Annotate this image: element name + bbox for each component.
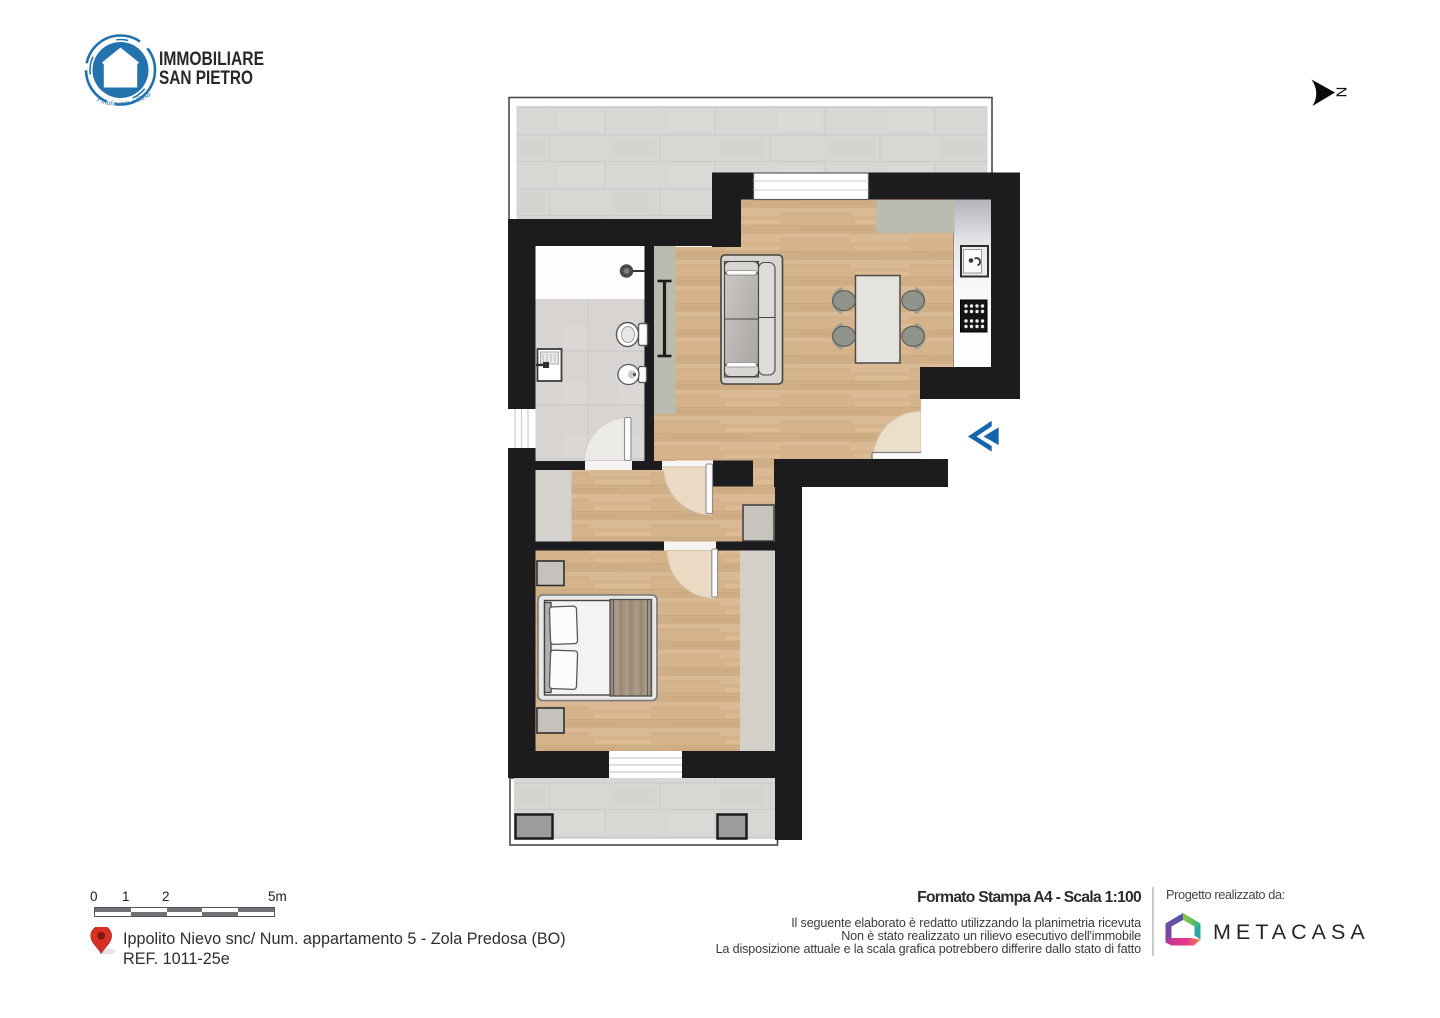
svg-text:N: N [1333,87,1350,98]
svg-text:IMMOBILIARE: IMMOBILIARE [159,49,264,70]
svg-text:SAN PIETRO: SAN PIETRO [159,68,253,89]
svg-text:METACASA: METACASA [1213,920,1370,944]
